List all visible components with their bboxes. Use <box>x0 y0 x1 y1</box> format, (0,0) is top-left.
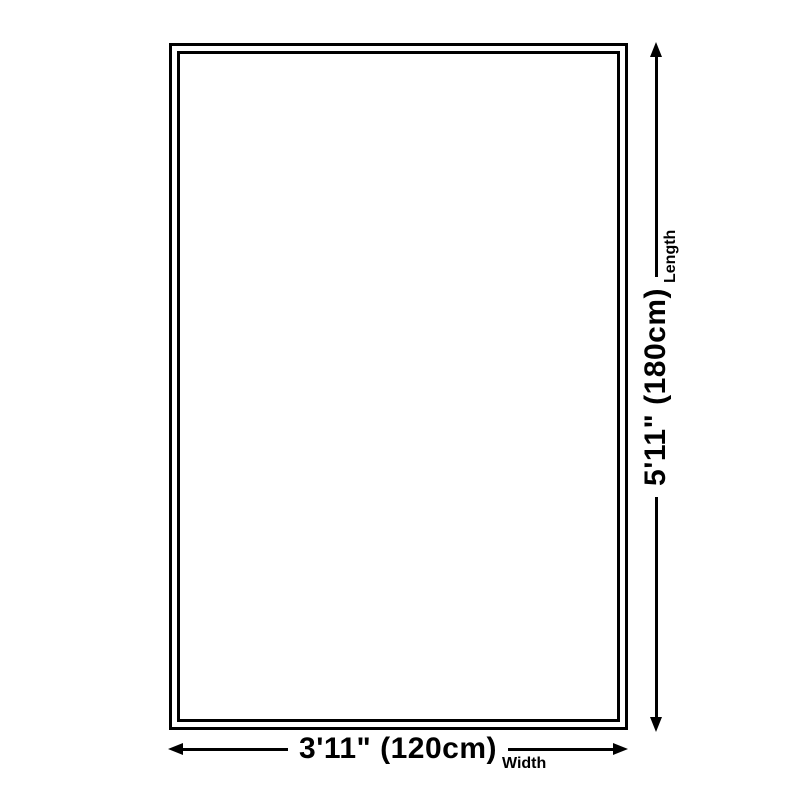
rug-outline-outer <box>169 43 628 730</box>
length-dimension-line-top <box>655 57 658 277</box>
length-axis-label: Length <box>662 230 680 283</box>
length-dimension-line-bottom <box>655 497 658 717</box>
rug-outline-inner <box>177 51 620 722</box>
arrowhead-up-icon <box>650 42 662 57</box>
width-dimension-line-left <box>183 748 288 751</box>
length-dimension: 5'11" (180cm) Length <box>639 42 673 732</box>
width-dimension: 3'11" (120cm) Width <box>168 732 628 766</box>
width-axis-label: Width <box>502 755 546 773</box>
width-dimension-line-right <box>508 748 613 751</box>
width-dimension-line-right-group: Width <box>508 732 613 766</box>
length-dimension-line-top-group: Length <box>639 57 673 277</box>
length-value: 5'11" (180cm) <box>641 288 671 486</box>
arrowhead-down-icon <box>650 717 662 732</box>
width-value: 3'11" (120cm) <box>299 734 497 764</box>
arrowhead-right-icon <box>613 743 628 755</box>
arrowhead-left-icon <box>168 743 183 755</box>
diagram-canvas: 3'11" (120cm) Width 5'11" (180cm) Length <box>0 0 800 800</box>
